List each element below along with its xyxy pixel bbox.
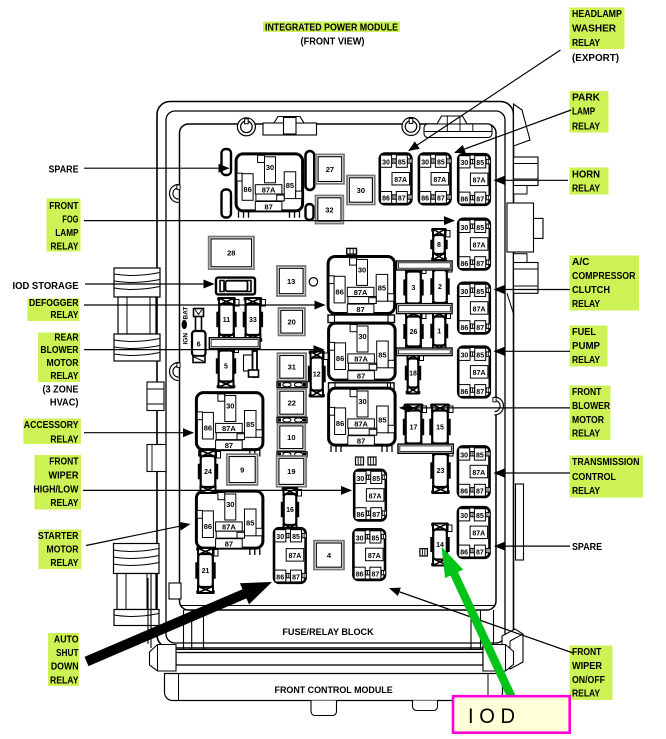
svg-text:AUTO: AUTO bbox=[54, 635, 79, 646]
svg-text:19: 19 bbox=[287, 467, 295, 476]
svg-text:87: 87 bbox=[476, 196, 484, 203]
svg-text:87: 87 bbox=[225, 441, 233, 450]
svg-text:87A: 87A bbox=[472, 470, 485, 477]
svg-text:86: 86 bbox=[461, 325, 469, 332]
svg-text:87A: 87A bbox=[473, 178, 486, 185]
svg-text:85: 85 bbox=[378, 415, 386, 424]
svg-text:5: 5 bbox=[224, 364, 228, 371]
svg-text:85: 85 bbox=[437, 160, 445, 167]
svg-text:87A: 87A bbox=[473, 370, 486, 377]
svg-text:BLOWER: BLOWER bbox=[572, 401, 611, 412]
svg-text:FUEL: FUEL bbox=[572, 327, 596, 338]
svg-text:RELAY: RELAY bbox=[572, 122, 600, 133]
svg-text:RELAY: RELAY bbox=[50, 498, 78, 509]
svg-text:33: 33 bbox=[249, 317, 257, 324]
svg-text:MOTOR: MOTOR bbox=[572, 415, 605, 426]
svg-text:87: 87 bbox=[264, 202, 272, 211]
svg-text:87A: 87A bbox=[368, 553, 381, 560]
svg-text:SPARE: SPARE bbox=[49, 165, 79, 176]
svg-text:30: 30 bbox=[356, 535, 364, 542]
svg-text:6: 6 bbox=[197, 342, 201, 349]
svg-text:HIGH/LOW: HIGH/LOW bbox=[33, 485, 78, 496]
svg-text:87A: 87A bbox=[354, 288, 368, 297]
svg-text:WIPER: WIPER bbox=[49, 470, 80, 481]
svg-text:A/C: A/C bbox=[572, 257, 590, 268]
svg-text:PARK: PARK bbox=[572, 92, 601, 103]
svg-text:87: 87 bbox=[476, 549, 484, 556]
svg-text:SPARE: SPARE bbox=[572, 542, 602, 553]
svg-text:18: 18 bbox=[409, 371, 417, 378]
svg-text:RELAY: RELAY bbox=[50, 310, 78, 321]
svg-text:87A: 87A bbox=[472, 531, 485, 538]
svg-text:87A: 87A bbox=[354, 355, 368, 364]
svg-text:85: 85 bbox=[246, 420, 254, 429]
svg-text:87: 87 bbox=[357, 372, 365, 381]
svg-text:86: 86 bbox=[461, 196, 469, 203]
svg-text:RELAY: RELAY bbox=[50, 371, 78, 382]
svg-text:RELAY: RELAY bbox=[572, 184, 600, 195]
svg-text:FRONT: FRONT bbox=[49, 201, 79, 212]
svg-text:87: 87 bbox=[292, 574, 300, 581]
svg-text:86: 86 bbox=[356, 571, 364, 578]
svg-text:COMPRESSOR: COMPRESSOR bbox=[572, 271, 636, 282]
svg-text:21: 21 bbox=[202, 568, 210, 575]
svg-text:11: 11 bbox=[223, 317, 231, 324]
svg-text:HVAC): HVAC) bbox=[50, 397, 79, 408]
svg-text:8: 8 bbox=[437, 242, 441, 249]
svg-text:PUMP: PUMP bbox=[572, 341, 600, 352]
svg-text:87A: 87A bbox=[354, 420, 368, 429]
svg-text:RELAY: RELAY bbox=[572, 486, 600, 497]
svg-text:16: 16 bbox=[286, 507, 294, 514]
svg-text:9: 9 bbox=[240, 465, 244, 474]
svg-text:85: 85 bbox=[246, 518, 254, 527]
svg-text:87: 87 bbox=[372, 571, 380, 578]
svg-text:87: 87 bbox=[398, 196, 406, 203]
svg-text:13: 13 bbox=[287, 277, 295, 286]
svg-text:RELAY: RELAY bbox=[50, 242, 78, 253]
svg-text:(3 ZONE: (3 ZONE bbox=[43, 385, 79, 396]
svg-text:17: 17 bbox=[410, 425, 418, 432]
svg-text:WASHER: WASHER bbox=[572, 23, 617, 34]
svg-text:86: 86 bbox=[336, 354, 344, 363]
svg-text:FRONT: FRONT bbox=[49, 457, 79, 468]
svg-text:26: 26 bbox=[410, 329, 418, 336]
svg-text:32: 32 bbox=[325, 205, 333, 214]
svg-text:BAT: BAT bbox=[183, 307, 190, 320]
svg-text:31: 31 bbox=[288, 363, 296, 372]
svg-text:30: 30 bbox=[460, 452, 468, 459]
svg-text:86: 86 bbox=[243, 185, 251, 194]
svg-text:87A: 87A bbox=[288, 553, 301, 560]
svg-text:87A: 87A bbox=[222, 523, 236, 532]
svg-text:86: 86 bbox=[335, 287, 343, 296]
svg-text:23: 23 bbox=[437, 468, 445, 475]
svg-text:30: 30 bbox=[226, 402, 234, 411]
svg-text:(FRONT VIEW): (FRONT VIEW) bbox=[301, 36, 365, 48]
svg-text:LAMP: LAMP bbox=[572, 107, 595, 118]
svg-text:RELAY: RELAY bbox=[50, 434, 78, 445]
svg-text:3: 3 bbox=[412, 285, 416, 292]
svg-text:30: 30 bbox=[382, 160, 390, 167]
svg-text:2: 2 bbox=[438, 284, 442, 291]
svg-text:TRANSMISSION: TRANSMISSION bbox=[572, 457, 640, 468]
svg-text:86: 86 bbox=[357, 512, 365, 519]
svg-text:87: 87 bbox=[476, 261, 484, 268]
svg-text:85: 85 bbox=[372, 476, 380, 483]
svg-text:85: 85 bbox=[286, 181, 294, 190]
svg-text:(EXPORT): (EXPORT) bbox=[572, 53, 619, 64]
svg-text:WIPER: WIPER bbox=[572, 661, 603, 672]
svg-text:RELAY: RELAY bbox=[572, 299, 600, 310]
svg-text:RELAY: RELAY bbox=[50, 675, 79, 686]
svg-text:12: 12 bbox=[313, 372, 321, 379]
svg-text:30: 30 bbox=[276, 534, 284, 541]
svg-text:87: 87 bbox=[476, 489, 484, 496]
svg-text:RELAY: RELAY bbox=[572, 355, 600, 366]
svg-text:RELAY: RELAY bbox=[572, 689, 600, 700]
svg-text:REAR: REAR bbox=[54, 332, 79, 343]
svg-text:IOD STORAGE: IOD STORAGE bbox=[13, 281, 79, 292]
svg-text:85: 85 bbox=[378, 284, 386, 293]
svg-text:FUSE/RELAY BLOCK: FUSE/RELAY BLOCK bbox=[282, 627, 374, 637]
svg-text:28: 28 bbox=[227, 249, 235, 258]
svg-text:MOTOR: MOTOR bbox=[47, 358, 80, 369]
svg-text:DEFOGGER: DEFOGGER bbox=[29, 298, 79, 309]
svg-text:87A: 87A bbox=[262, 185, 276, 194]
svg-text:87: 87 bbox=[356, 305, 364, 314]
svg-text:FRONT CONTROL MODULE: FRONT CONTROL MODULE bbox=[275, 685, 393, 695]
svg-text:86: 86 bbox=[336, 419, 344, 428]
svg-text:30: 30 bbox=[460, 513, 468, 520]
svg-text:30: 30 bbox=[358, 265, 366, 274]
svg-text:STARTER: STARTER bbox=[38, 531, 79, 542]
svg-text:87A: 87A bbox=[433, 177, 446, 184]
svg-text:30: 30 bbox=[357, 186, 365, 195]
svg-text:FOG: FOG bbox=[62, 215, 78, 226]
svg-text:87A: 87A bbox=[473, 306, 486, 313]
svg-text:10: 10 bbox=[287, 433, 295, 442]
svg-text:85: 85 bbox=[476, 513, 484, 520]
svg-text:86: 86 bbox=[382, 196, 390, 203]
svg-text:85: 85 bbox=[378, 350, 386, 359]
svg-text:FRONT: FRONT bbox=[572, 387, 602, 398]
svg-text:24: 24 bbox=[204, 469, 212, 476]
svg-text:87: 87 bbox=[225, 540, 233, 549]
svg-text:30: 30 bbox=[357, 476, 365, 483]
svg-text:30: 30 bbox=[358, 397, 366, 406]
svg-text:87A: 87A bbox=[369, 493, 382, 500]
svg-text:BLOWER: BLOWER bbox=[40, 345, 79, 356]
svg-text:IGN: IGN bbox=[183, 333, 190, 345]
svg-text:85: 85 bbox=[476, 160, 484, 167]
svg-text:30: 30 bbox=[461, 353, 469, 360]
svg-text:85: 85 bbox=[292, 534, 300, 541]
svg-text:30: 30 bbox=[461, 289, 469, 296]
svg-text:MOTOR: MOTOR bbox=[47, 545, 80, 556]
svg-text:85: 85 bbox=[398, 160, 406, 167]
svg-text:HORN: HORN bbox=[572, 170, 600, 181]
svg-text:INTEGRATED POWER MODULE: INTEGRATED POWER MODULE bbox=[265, 21, 398, 33]
svg-text:15: 15 bbox=[436, 425, 444, 432]
svg-text:I O D: I O D bbox=[468, 705, 515, 728]
svg-text:30: 30 bbox=[421, 160, 429, 167]
svg-text:27: 27 bbox=[326, 165, 334, 174]
svg-text:86: 86 bbox=[276, 574, 284, 581]
svg-text:FRONT: FRONT bbox=[572, 647, 602, 658]
svg-text:30: 30 bbox=[226, 500, 234, 509]
svg-text:86: 86 bbox=[461, 389, 469, 396]
svg-text:LAMP: LAMP bbox=[55, 228, 78, 239]
svg-text:87A: 87A bbox=[394, 177, 407, 184]
svg-text:1: 1 bbox=[437, 329, 441, 336]
svg-text:30: 30 bbox=[358, 332, 366, 341]
svg-text:85: 85 bbox=[476, 289, 484, 296]
svg-text:CLUTCH: CLUTCH bbox=[572, 285, 610, 296]
svg-text:86: 86 bbox=[204, 424, 212, 433]
svg-text:CONTROL: CONTROL bbox=[572, 472, 616, 483]
svg-text:85: 85 bbox=[476, 353, 484, 360]
svg-text:85: 85 bbox=[476, 452, 484, 459]
svg-text:87: 87 bbox=[357, 437, 365, 446]
svg-text:RELAY: RELAY bbox=[572, 429, 600, 440]
svg-text:86: 86 bbox=[421, 196, 429, 203]
svg-text:ACCESSORY: ACCESSORY bbox=[24, 420, 79, 431]
svg-text:86: 86 bbox=[461, 261, 469, 268]
svg-text:87: 87 bbox=[437, 196, 445, 203]
svg-text:85: 85 bbox=[372, 535, 380, 542]
svg-text:30: 30 bbox=[461, 160, 469, 167]
svg-text:DOWN: DOWN bbox=[51, 662, 79, 673]
svg-text:86: 86 bbox=[460, 549, 468, 556]
svg-text:87: 87 bbox=[372, 512, 380, 519]
svg-text:87: 87 bbox=[476, 325, 484, 332]
svg-text:22: 22 bbox=[288, 399, 296, 408]
svg-text:20: 20 bbox=[288, 318, 296, 327]
svg-text:86: 86 bbox=[204, 522, 212, 531]
svg-text:87A: 87A bbox=[222, 424, 236, 433]
svg-text:86: 86 bbox=[460, 489, 468, 496]
svg-text:RELAY: RELAY bbox=[50, 558, 78, 569]
svg-text:87A: 87A bbox=[473, 242, 486, 249]
svg-text:87: 87 bbox=[476, 389, 484, 396]
svg-text:ON/OFF: ON/OFF bbox=[572, 675, 605, 686]
svg-text:30: 30 bbox=[266, 163, 274, 172]
svg-text:RELAY: RELAY bbox=[572, 38, 600, 49]
svg-text:SHUT: SHUT bbox=[56, 648, 79, 659]
svg-text:HEADLAMP: HEADLAMP bbox=[572, 9, 622, 20]
svg-text:85: 85 bbox=[476, 225, 484, 232]
svg-text:30: 30 bbox=[461, 225, 469, 232]
